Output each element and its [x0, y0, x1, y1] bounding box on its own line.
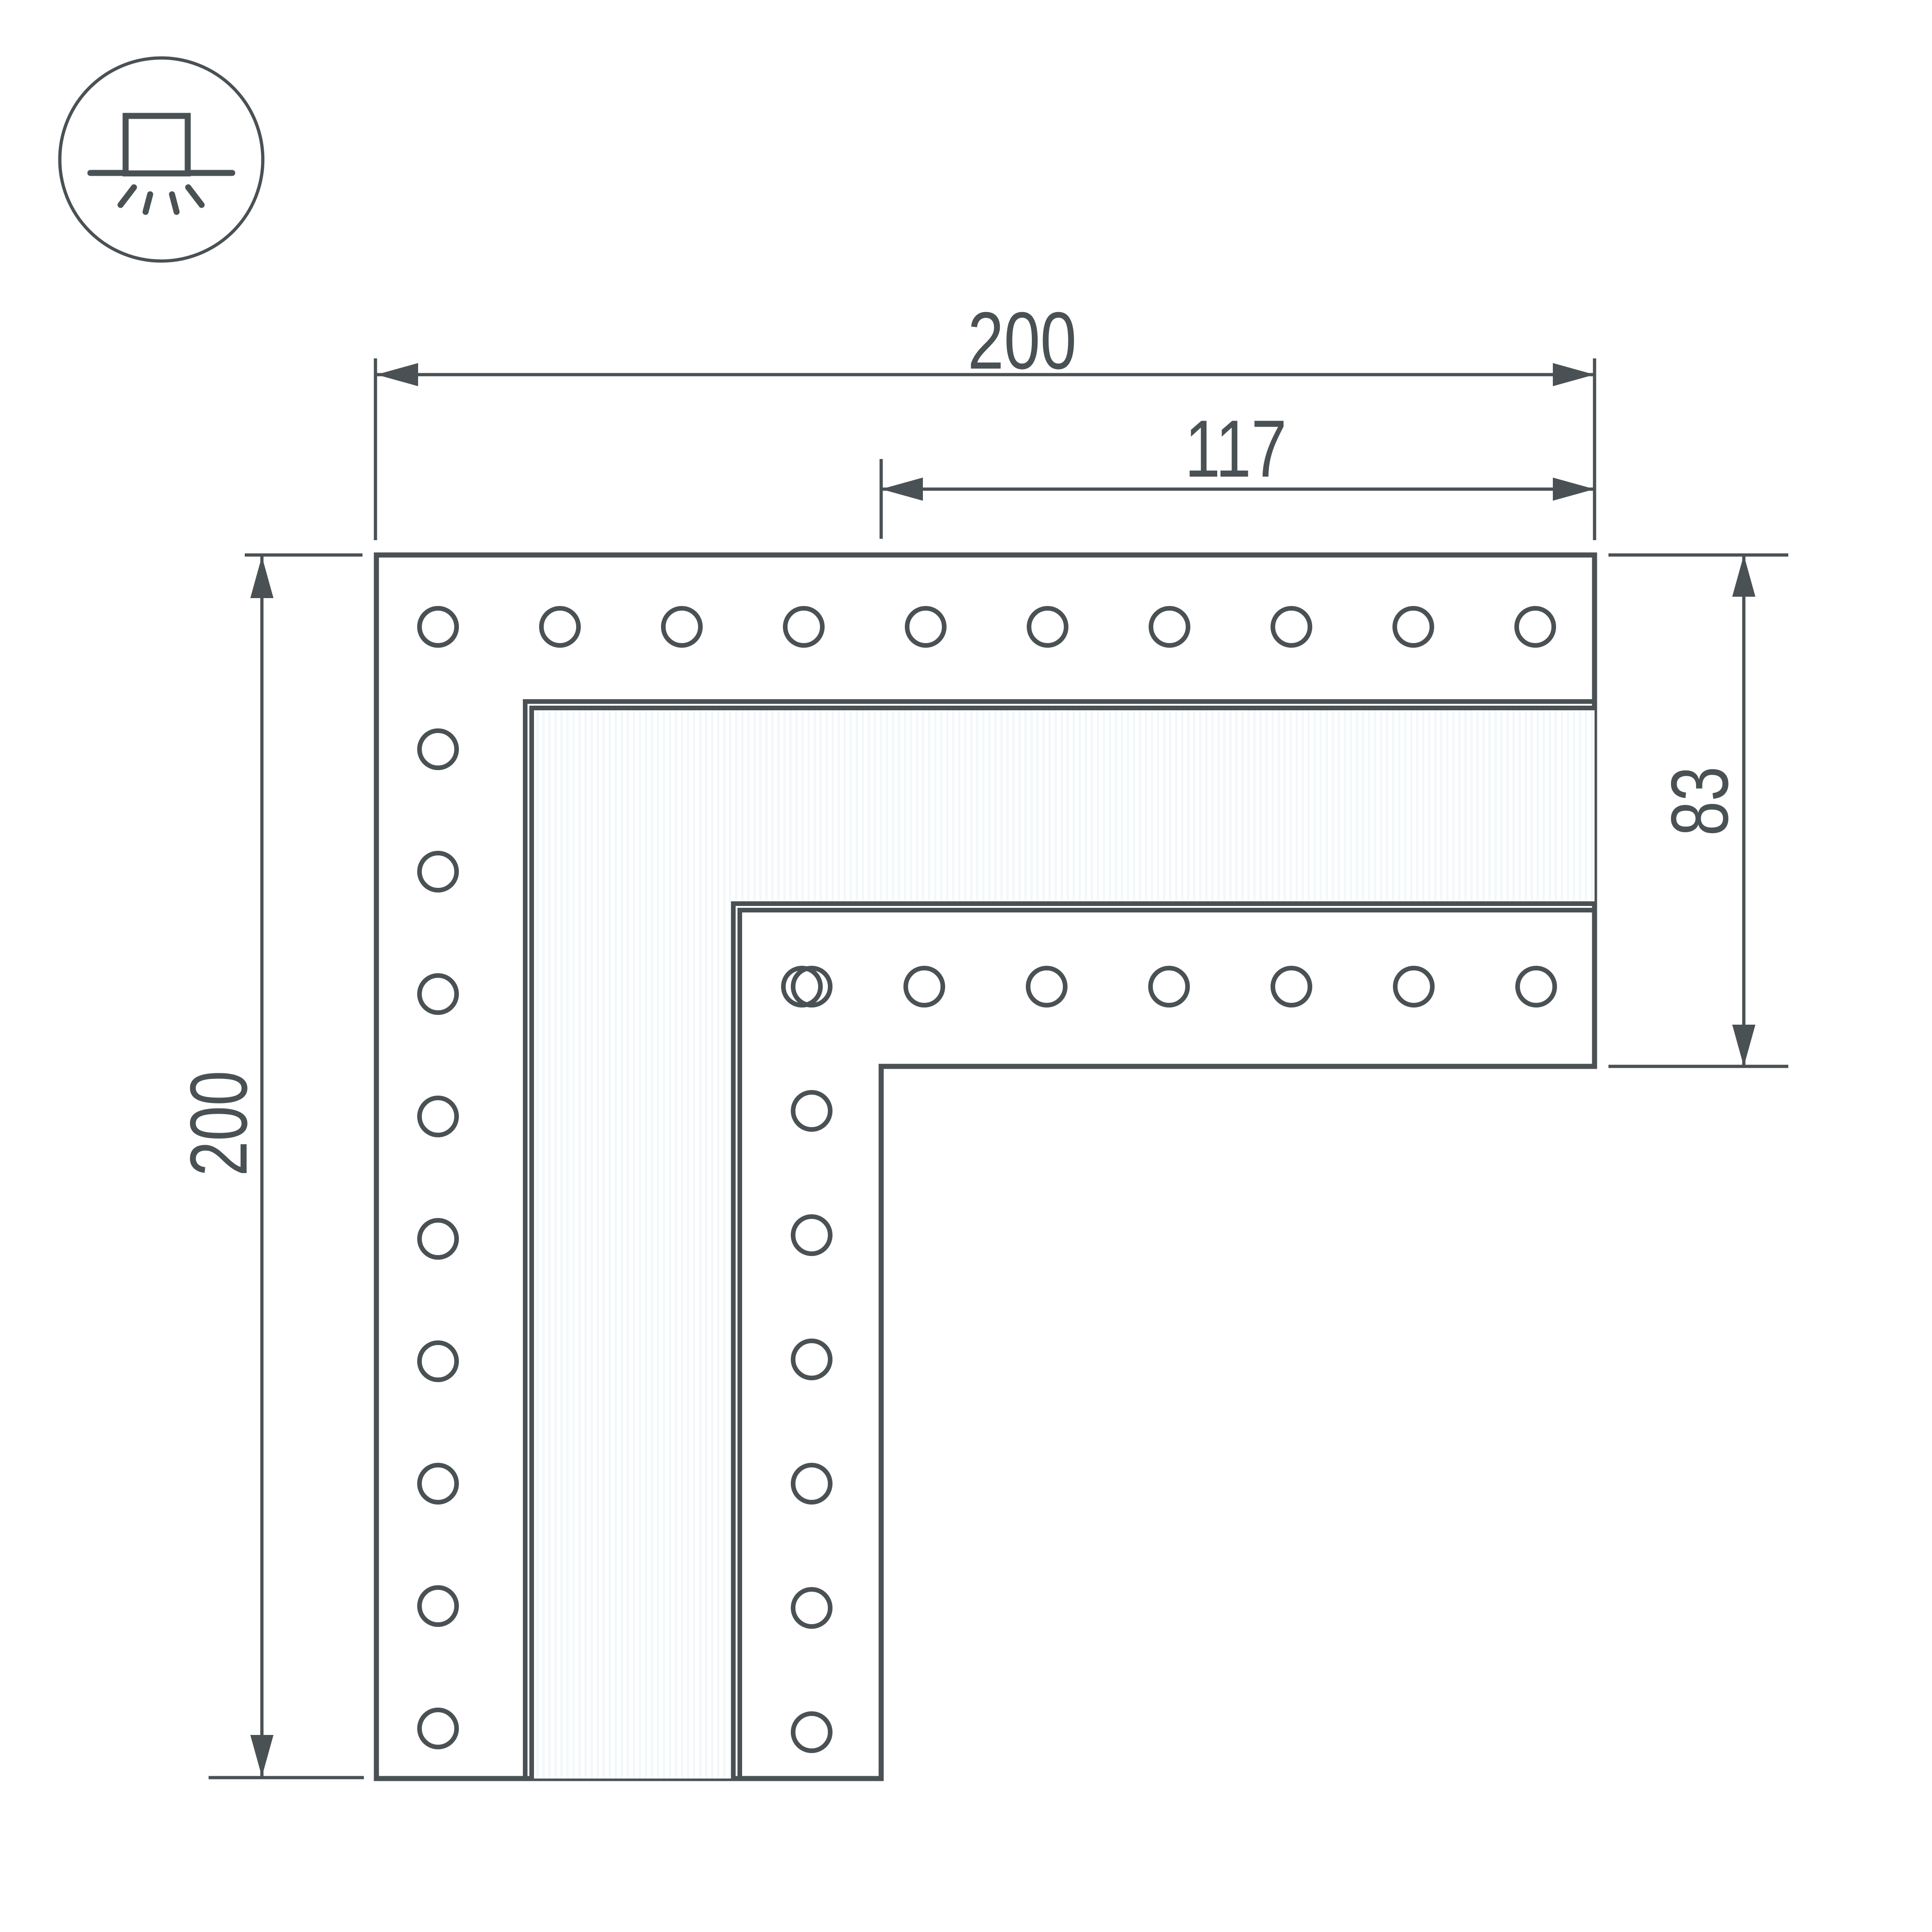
- luminaire-box: [126, 116, 188, 173]
- dimension-label-left-height: 200: [174, 1071, 264, 1176]
- technical-drawing-canvas: 200 117 200 83: [0, 0, 1932, 1932]
- dimension-label-right-height: 83: [1655, 766, 1745, 836]
- dimension-label-inner-width: 117: [1185, 404, 1287, 494]
- dimension-label-top-width: 200: [968, 296, 1077, 386]
